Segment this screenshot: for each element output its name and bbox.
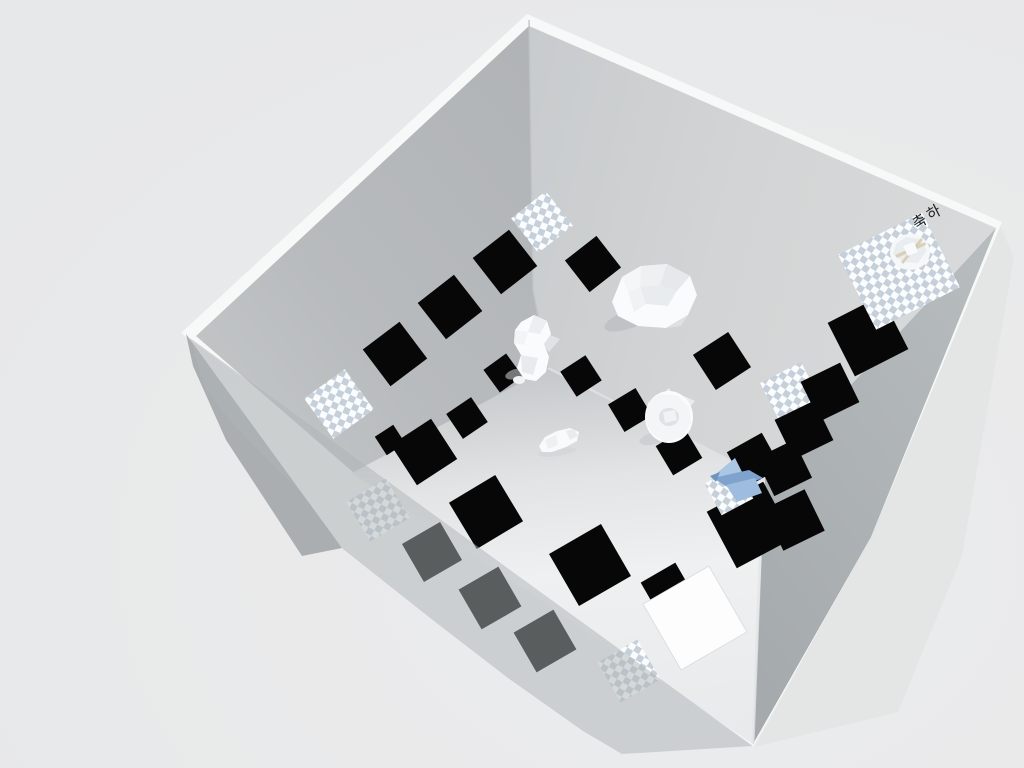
game-3d-viewport[interactable]: 축하 <box>0 0 1024 768</box>
scene-canvas[interactable]: 축하 <box>0 0 1024 768</box>
crumpled-ball <box>890 234 930 270</box>
